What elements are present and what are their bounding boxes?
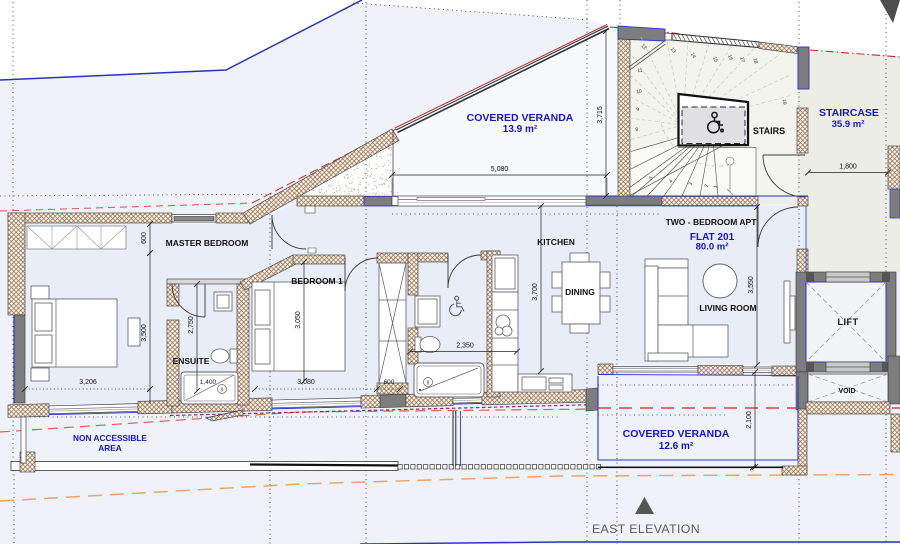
svg-text:3,050: 3,050 — [295, 311, 302, 329]
svg-text:3,715: 3,715 — [597, 106, 604, 124]
svg-text:35.9 m²: 35.9 m² — [832, 119, 865, 130]
svg-text:EAST ELEVATION: EAST ELEVATION — [592, 522, 700, 536]
svg-text:3,500: 3,500 — [141, 324, 148, 342]
svg-text:AREA: AREA — [98, 443, 122, 453]
svg-text:TWO - BEDROOM APT: TWO - BEDROOM APT — [666, 217, 758, 227]
svg-text:STAIRS: STAIRS — [753, 126, 785, 136]
svg-text:LIFT: LIFT — [838, 317, 859, 327]
svg-text:600: 600 — [384, 379, 395, 386]
svg-text:3,700: 3,700 — [532, 283, 539, 301]
svg-text:11: 11 — [637, 68, 643, 74]
svg-text:80.0 m²: 80.0 m² — [696, 242, 729, 253]
svg-text:2,750: 2,750 — [188, 316, 195, 334]
svg-text:1,400: 1,400 — [200, 379, 217, 386]
svg-text:DINING: DINING — [565, 287, 595, 297]
svg-text:2,350: 2,350 — [456, 343, 474, 350]
svg-text:NON ACCESSIBLE: NON ACCESSIBLE — [73, 433, 147, 443]
svg-text:3,206: 3,206 — [79, 379, 97, 386]
svg-text:10: 10 — [636, 89, 642, 96]
svg-text:COVERED VERANDA: COVERED VERANDA — [467, 112, 574, 124]
svg-text:COVERED VERANDA: COVERED VERANDA — [623, 428, 730, 440]
svg-text:13.9 m²: 13.9 m² — [503, 124, 538, 135]
svg-text:9: 9 — [221, 388, 224, 394]
svg-text:STAIRCASE: STAIRCASE — [819, 107, 879, 119]
svg-text:ENSUITE: ENSUITE — [173, 356, 210, 366]
svg-text:1,800: 1,800 — [839, 164, 857, 171]
svg-text:2,100: 2,100 — [746, 411, 753, 429]
svg-text:19: 19 — [781, 99, 787, 105]
svg-text:5,080: 5,080 — [491, 166, 509, 173]
svg-text:600: 600 — [141, 232, 148, 244]
svg-text:LIVING ROOM: LIVING ROOM — [699, 303, 756, 313]
svg-text:VOID: VOID — [838, 388, 855, 395]
svg-text:MASTER BEDROOM: MASTER BEDROOM — [166, 238, 249, 248]
svg-text:3,550: 3,550 — [748, 276, 755, 294]
svg-text:BEDROOM 1: BEDROOM 1 — [291, 276, 343, 286]
svg-text:3,080: 3,080 — [297, 379, 315, 386]
svg-text:12.6 m²: 12.6 m² — [659, 441, 694, 452]
svg-text:KITCHEN: KITCHEN — [537, 237, 575, 247]
svg-text:9: 9 — [427, 381, 430, 387]
